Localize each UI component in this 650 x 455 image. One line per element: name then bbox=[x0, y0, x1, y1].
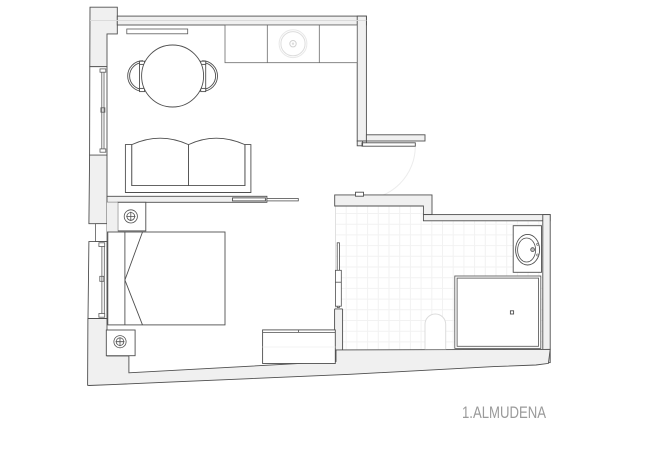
svg-text:1.ALMUDENA: 1.ALMUDENA bbox=[462, 403, 547, 422]
